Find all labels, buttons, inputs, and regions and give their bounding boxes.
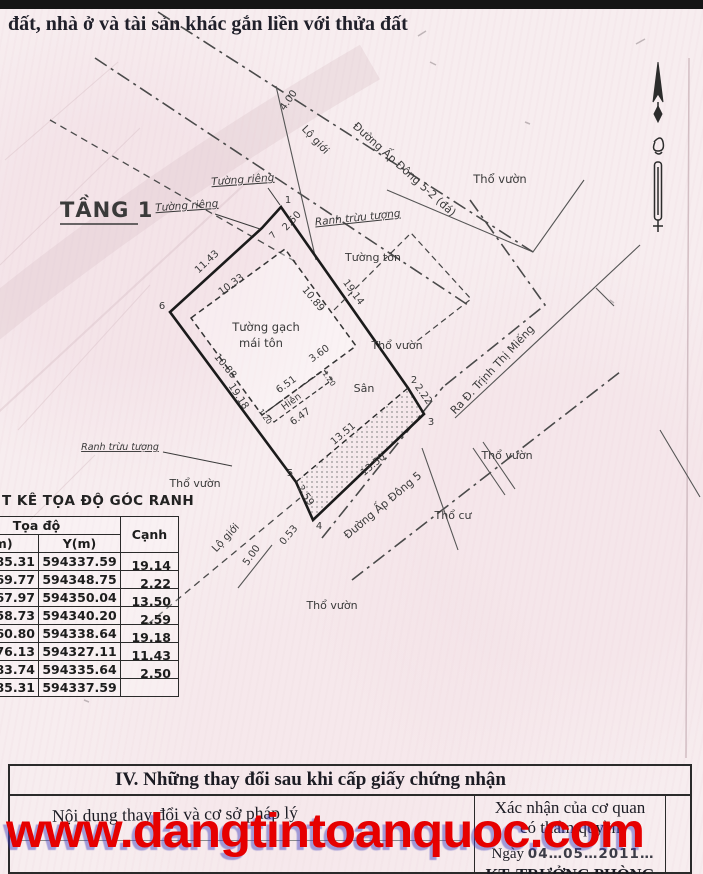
tho-vuon-label-4: Thổ vườn xyxy=(305,599,357,612)
dim-0-53: 0.53 xyxy=(278,523,301,547)
dim-5-00: 5.00 xyxy=(241,543,263,568)
tho-vuon-label-2: Thổ vườn xyxy=(370,339,422,352)
table-header-x: X(m) xyxy=(0,535,39,553)
tho-vuon-label-1: Thổ vườn xyxy=(472,172,526,186)
ranh-truu-tuong-left-label: Ranh trừu tượng xyxy=(81,442,159,453)
floor-label: TẦNG 1 xyxy=(60,194,153,222)
tuong-ton-label: Tường tôn xyxy=(344,251,401,264)
table-row: 785.31594337.5919.14 xyxy=(0,553,179,571)
dim-1-20-left: 1.20 xyxy=(256,407,273,426)
point-3: 3 xyxy=(428,417,434,428)
coord-table-title: T KÊ TỌA ĐỘ GÓC RANH xyxy=(2,493,194,509)
north-arrow-icon xyxy=(653,62,663,232)
point-7: 7 xyxy=(268,230,279,241)
dim-19-14: 19.14 xyxy=(340,278,366,308)
cadastral-diagram: TẦNG 1 Đường Ấp Đông 5-2 (đá) Đường Ấp Đ… xyxy=(0,0,703,874)
road-top-label: Đường Ấp Đông 5-2 (đá) xyxy=(350,119,459,219)
section-iv-heading: IV. Những thay đổi sau khi cấp giấy chứn… xyxy=(10,766,690,796)
point-4: 4 xyxy=(316,521,322,532)
table-header-y: Y(m) xyxy=(39,535,121,553)
road-exit-label: Ra Đ. Trịnh Thị Miếng xyxy=(448,322,537,416)
lo-gioi-bottom-label: Lộ giới xyxy=(210,521,242,554)
dim-11-43: 11.43 xyxy=(193,248,221,276)
scanned-certificate-page: đất, nhà ở và tài sản khác gắn liền với … xyxy=(0,0,703,874)
building-label-line1: Tường gạch xyxy=(231,320,300,334)
tho-cu-label: Thổ cư xyxy=(434,509,473,522)
san-label: Sân xyxy=(354,382,375,395)
point-5: 5 xyxy=(287,468,293,479)
watermark-text: www.dangtintoanquoc.com xyxy=(6,804,644,859)
table-header-canh: Cạnh xyxy=(121,517,179,553)
dim-1-20-right: 1.20 xyxy=(320,369,337,388)
coordinate-table: Tọa độ Cạnh X(m) Y(m) 785.31594337.5919.… xyxy=(0,516,179,697)
point-1: 1 xyxy=(285,195,291,206)
tho-vuon-label-5: Thổ vườn xyxy=(168,477,220,490)
signer-title: KT. TRƯỞNG PHÒNG xyxy=(475,865,665,874)
building-label-line2: mái tôn xyxy=(239,336,283,350)
ranh-truu-tuong-top-label: Ranh trừu tượng xyxy=(314,208,401,229)
lo-gioi-top-label: Lộ giới xyxy=(299,123,331,156)
dim-6-47: 6.47 xyxy=(288,406,312,428)
point-2: 2 xyxy=(411,375,417,386)
tho-vuon-label-3: Thổ vườn xyxy=(480,449,532,462)
table-header-group: Tọa độ xyxy=(0,517,121,535)
point-6: 6 xyxy=(159,301,165,312)
